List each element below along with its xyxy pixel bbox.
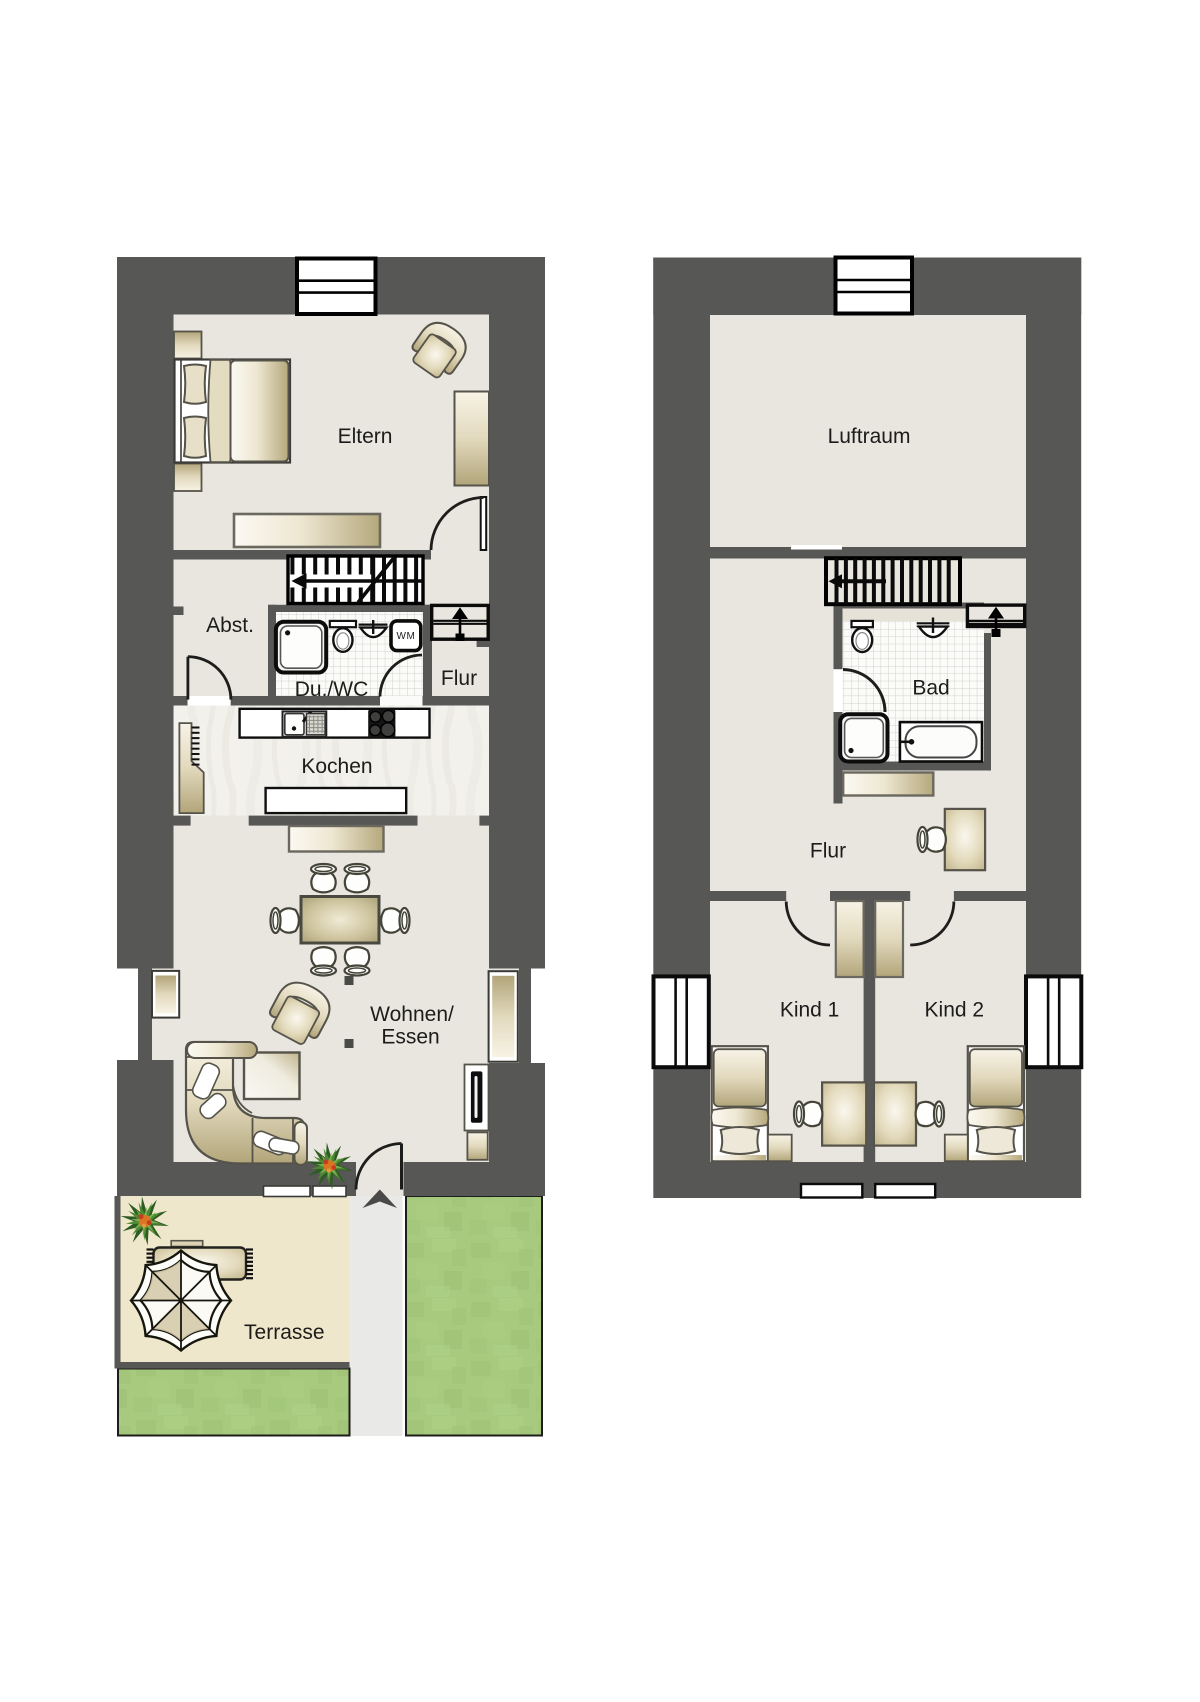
svg-text:Kochen: Kochen bbox=[301, 755, 372, 778]
svg-text:Du./WC: Du./WC bbox=[295, 678, 369, 701]
svg-text:Luftraum: Luftraum bbox=[828, 425, 911, 448]
svg-text:WM: WM bbox=[397, 631, 416, 642]
svg-text:Essen: Essen bbox=[381, 1026, 439, 1049]
svg-text:Flur: Flur bbox=[810, 840, 846, 863]
svg-text:Abst.: Abst. bbox=[206, 614, 254, 637]
svg-text:Eltern: Eltern bbox=[338, 425, 393, 448]
svg-text:Wohnen/: Wohnen/ bbox=[370, 1003, 454, 1026]
svg-text:Bad: Bad bbox=[912, 677, 949, 700]
svg-text:Flur: Flur bbox=[441, 667, 477, 690]
svg-text:Kind 2: Kind 2 bbox=[925, 999, 985, 1022]
svg-text:Kind 1: Kind 1 bbox=[780, 999, 840, 1022]
svg-text:Terrasse: Terrasse bbox=[244, 1321, 325, 1344]
